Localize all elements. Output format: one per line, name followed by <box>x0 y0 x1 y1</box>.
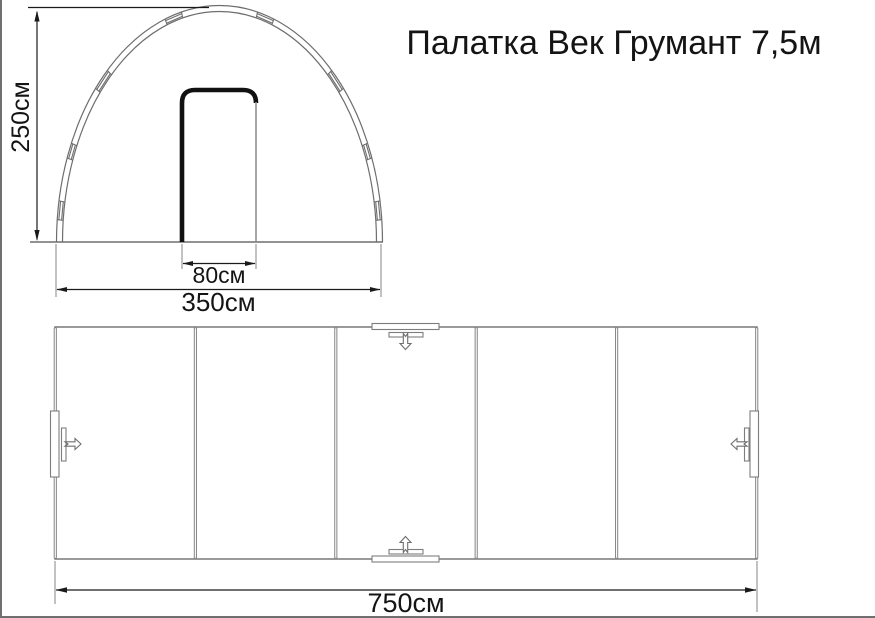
diagram-title: Палатка Век Грумант 7,5м <box>406 24 821 62</box>
direction-arrows <box>65 334 747 553</box>
left-door-bar <box>51 411 60 477</box>
arrowhead-left-icon <box>183 261 194 266</box>
arch-inner-line <box>63 12 377 242</box>
arrowhead-right-icon <box>370 287 381 292</box>
arrowhead-right-icon <box>745 587 757 592</box>
arch-joint-tick <box>374 201 380 202</box>
left-door-slider <box>62 428 67 461</box>
arch-joint-sleeve <box>331 72 343 90</box>
arch-joint-sleeve <box>97 72 109 90</box>
door-outline <box>182 90 256 242</box>
tent-diagram: 250см 80см 350см Палатка Век Грумант 7,5… <box>2 0 875 618</box>
door-width-label: 80см <box>193 262 246 288</box>
arrow-right-outline-icon <box>65 439 81 450</box>
top-vent <box>372 324 439 338</box>
right-door-bar <box>750 411 759 477</box>
bottom-vent <box>372 550 439 563</box>
arrowhead-up-icon <box>34 11 39 22</box>
arch-joint-sleeve <box>329 74 340 92</box>
height-dimension: 250см <box>7 8 209 242</box>
plan-view: 750см <box>51 324 759 618</box>
tent-diagram-page: 250см 80см 350см Палатка Век Грумант 7,5… <box>0 0 875 618</box>
arch-joint-tick <box>376 220 382 221</box>
arch-joint-tick <box>57 220 63 221</box>
panel-dividers <box>55 328 756 559</box>
length-dimension-label: 750см <box>367 588 444 618</box>
right-side-door <box>745 411 759 477</box>
left-side-door <box>51 411 67 477</box>
height-dimension-label: 250см <box>7 81 35 152</box>
arch-outer-line <box>57 6 383 243</box>
arch-joint-sleeve <box>99 74 110 92</box>
arrowhead-left-icon <box>57 287 68 292</box>
bottom-vent-flap <box>372 556 439 562</box>
front-view: 250см 80см 350см <box>7 6 383 318</box>
length-dimension: 750см <box>55 561 757 618</box>
tent-body-outline <box>55 327 757 559</box>
arrowhead-down-icon <box>34 230 39 241</box>
width-dimension-label: 350см <box>181 287 255 317</box>
arrowhead-left-icon <box>56 587 68 592</box>
arrowhead-right-icon <box>245 261 256 266</box>
arch-joints <box>57 12 382 220</box>
top-vent-flap <box>372 324 439 330</box>
arch-joint-tick <box>59 201 65 202</box>
door-width-dimension: 80см <box>182 244 256 288</box>
